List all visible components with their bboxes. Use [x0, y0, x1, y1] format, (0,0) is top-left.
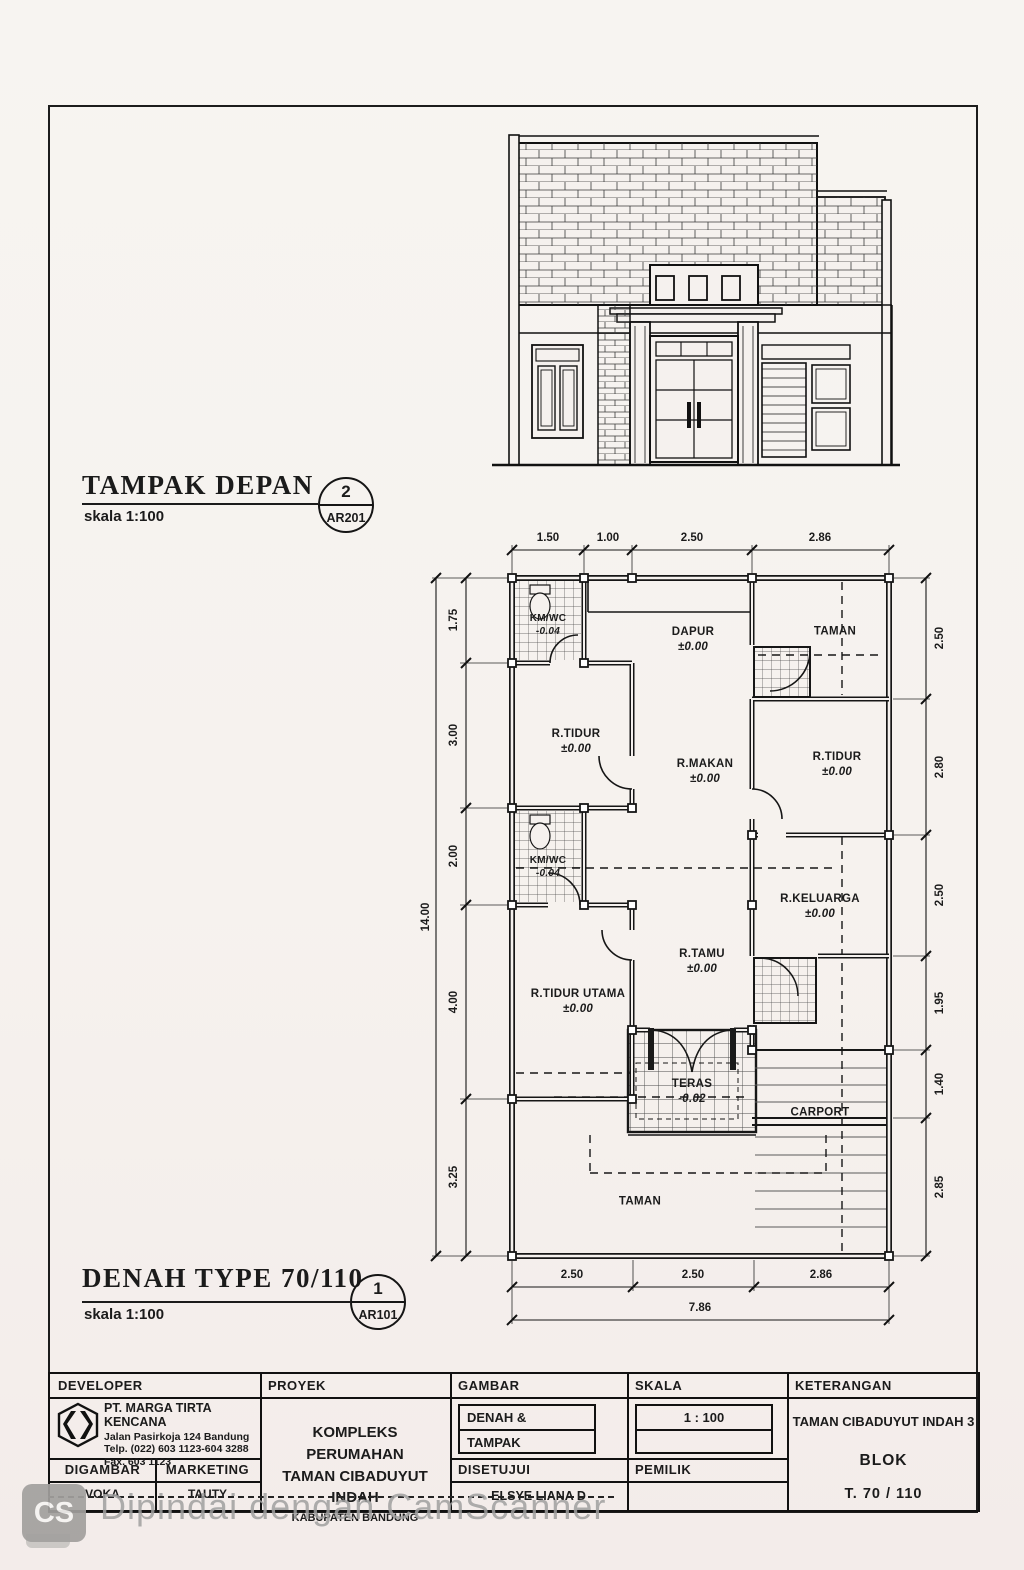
developer-company: PT. MARGA TIRTA KENCANA	[104, 1401, 260, 1429]
titleblock-divider	[450, 1458, 787, 1460]
digambar-header: DIGAMBAR	[50, 1462, 155, 1477]
brick-pillar	[598, 305, 630, 465]
dim-top-1: 1.50	[537, 532, 559, 544]
skala-empty-cell	[637, 1429, 771, 1454]
room-label-kmwc-top: KM/WC -0.04	[530, 612, 567, 638]
entry-beam	[610, 308, 782, 322]
dim-bottom-1: 2.50	[561, 1269, 583, 1281]
entry-parapet	[650, 265, 758, 305]
elevation-sheet-number: 2	[320, 479, 372, 506]
tiled-areas	[515, 581, 816, 1023]
room-label-kmwc-mid: KM/WC -0.04	[530, 854, 567, 880]
dim-left-3: 2.00	[448, 845, 460, 867]
titleblock-divider	[450, 1481, 787, 1483]
developer-phone: Telp. (022) 603 1123-604 3288	[104, 1443, 260, 1455]
proyek-header: PROYEK	[268, 1378, 326, 1393]
proyek-line1: KOMPLEKS PERUMAHAN	[262, 1422, 448, 1466]
dimension-ticks	[431, 545, 931, 1325]
camscanner-badge-text: CS	[34, 1497, 74, 1530]
room-label-carport: CARPORT	[791, 1106, 850, 1121]
gambar-header: GAMBAR	[458, 1378, 520, 1393]
carport-slats	[755, 1068, 886, 1227]
skala-value-box: 1 : 100	[635, 1404, 773, 1454]
plan-scale: skala 1:100	[84, 1306, 164, 1323]
plan-title-underline	[82, 1301, 350, 1303]
dim-right-3: 2.50	[934, 884, 946, 906]
plan-sheet-number: 1	[352, 1276, 404, 1303]
room-label-rtamu: R.TAMU ±0.00	[679, 947, 725, 977]
dim-left-total: 14.00	[420, 903, 432, 932]
skala-value: 1 : 100	[637, 1406, 771, 1429]
developer-logo	[56, 1402, 100, 1448]
room-label-taman-bottom: TAMAN	[619, 1195, 661, 1210]
front-elevation-drawing	[480, 118, 910, 478]
elevation-title: TAMPAK DEPAN	[82, 470, 314, 501]
plan-title: DENAH TYPE 70/110	[82, 1263, 364, 1294]
dim-left-5: 3.25	[448, 1166, 460, 1188]
developer-header: DEVELOPER	[58, 1378, 143, 1393]
dim-right-5: 1.40	[934, 1073, 946, 1095]
room-label-rkeluarga: R.KELUARGA ±0.00	[780, 892, 860, 922]
elevation-ref-circle: 2 AR201	[318, 477, 374, 533]
elevation-sheet-code: AR201	[320, 506, 372, 528]
room-label-rtidur-left: R.TIDUR ±0.00	[552, 727, 601, 757]
gambar-value-box: DENAH & TAMPAK	[458, 1404, 596, 1454]
dim-top-2: 1.00	[597, 532, 619, 544]
room-label-rtidur-utama: R.TIDUR UTAMA ±0.00	[531, 987, 625, 1017]
elevation-title-underline	[82, 503, 318, 505]
keterangan-header: KETERANGAN	[795, 1378, 892, 1393]
extension-lines	[432, 545, 930, 1324]
titleblock-divider	[50, 1397, 978, 1399]
camscanner-watermark: Dipindai dengan CamScanner	[100, 1486, 606, 1528]
marketing-header: MARKETING	[155, 1462, 260, 1477]
dim-bottom-3: 2.86	[810, 1269, 832, 1281]
titleblock-divider	[627, 1374, 629, 1510]
plan-ref-circle: 1 AR101	[350, 1274, 406, 1330]
room-label-teras: TERAS -0.02	[672, 1077, 712, 1107]
scanned-architectural-sheet: TAMPAK DEPAN skala 1:100 2 AR201	[0, 0, 1024, 1570]
keterangan-line1: TAMAN CIBADUYUT INDAH 3	[789, 1414, 978, 1429]
room-label-rmakan: R.MAKAN ±0.00	[677, 757, 733, 787]
developer-address: Jalan Pasirkoja 124 Bandung	[104, 1431, 260, 1443]
room-label-taman-top: TAMAN	[814, 625, 856, 640]
dim-top-4: 2.86	[809, 532, 831, 544]
plan-sheet-code: AR101	[352, 1303, 404, 1325]
right-window	[762, 345, 850, 457]
dim-right-4: 1.95	[934, 992, 946, 1014]
floor-plan: KM/WC -0.04 DAPUR ±0.00 TAMAN R.TIDUR ±0…	[420, 525, 980, 1330]
dim-left-4: 4.00	[448, 991, 460, 1013]
dim-right-1: 2.50	[934, 627, 946, 649]
keterangan-line2: BLOK	[789, 1452, 978, 1470]
dim-right-6: 2.85	[934, 1176, 946, 1198]
gambar-line1: DENAH &	[460, 1406, 594, 1429]
gambar-line2: TAMPAK	[460, 1429, 594, 1454]
dim-bottom-2: 2.50	[682, 1269, 704, 1281]
dim-top-3: 2.50	[681, 532, 703, 544]
skala-header: SKALA	[635, 1378, 682, 1393]
room-label-dapur: DAPUR ±0.00	[672, 625, 714, 655]
disetujui-header: DISETUJUI	[458, 1462, 530, 1477]
room-label-rtidur-right: R.TIDUR ±0.00	[813, 750, 862, 780]
dim-bottom-total: 7.86	[689, 1302, 711, 1314]
camscanner-badge: CS	[22, 1484, 86, 1542]
dim-left-2: 3.00	[448, 724, 460, 746]
main-door	[650, 336, 738, 462]
pemilik-header: PEMILIK	[635, 1462, 691, 1477]
dim-left-1: 1.75	[448, 609, 460, 631]
dim-right-2: 2.80	[934, 756, 946, 778]
keterangan-line3: T. 70 / 110	[789, 1486, 978, 1502]
elevation-scale: skala 1:100	[84, 508, 164, 525]
left-post	[509, 135, 519, 465]
left-window	[532, 345, 583, 438]
